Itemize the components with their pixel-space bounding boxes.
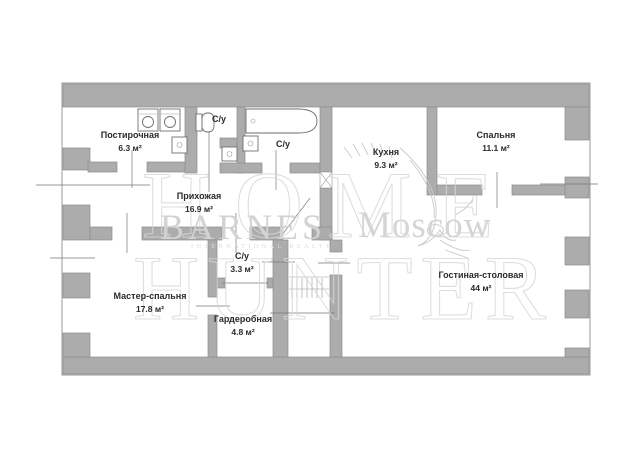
wall-segment	[290, 163, 320, 173]
wall-segment	[220, 163, 262, 173]
hanger-rail-icon	[289, 277, 329, 298]
room-label-su-top-left: С/у	[212, 113, 226, 126]
wall-segment	[330, 240, 342, 252]
wall-segment	[63, 84, 589, 107]
room-area: 44 м²	[438, 282, 523, 294]
wall-segment	[512, 185, 565, 195]
room-name: Гардеробная	[214, 314, 272, 324]
room-label-master-spalnya: Мастер-спальня 17.8 м²	[114, 290, 187, 315]
wall-segment	[63, 333, 90, 357]
wall-segment	[330, 275, 342, 357]
wall-segment	[565, 237, 589, 265]
wall-segment	[273, 240, 288, 357]
room-name: Постирочная	[101, 130, 159, 140]
wall-segment	[565, 107, 589, 140]
room-label-prihozhaya: Прихожая 16.9 м²	[177, 190, 221, 215]
room-name: Кухня	[373, 147, 399, 157]
room-area: 4.8 м²	[214, 326, 272, 338]
room-name: Гостиная-столовая	[438, 270, 523, 280]
room-label-kuhnya: Кухня 9.3 м²	[373, 146, 399, 171]
wall-segment	[142, 227, 222, 240]
wall-segment	[312, 227, 332, 240]
wall-segment	[437, 185, 482, 195]
room-area: 16.9 м²	[177, 203, 221, 215]
wall-segment	[63, 205, 90, 240]
washing-machine-icon	[138, 109, 158, 131]
sink-icon	[172, 137, 187, 153]
wall-segment	[147, 162, 185, 172]
room-area: 3.3 м²	[230, 263, 253, 275]
wall-segment	[565, 348, 589, 357]
room-name: Прихожая	[177, 191, 221, 201]
room-area: 6.3 м²	[101, 142, 159, 154]
wall-segment	[63, 273, 90, 298]
room-label-su-top-right: С/у	[276, 138, 290, 151]
room-area: 11.1 м²	[477, 142, 516, 154]
room-name: С/у	[235, 251, 249, 261]
room-label-garderobnaya: Гардеробная 4.8 м²	[214, 313, 272, 338]
wall-segment	[320, 107, 332, 172]
room-label-su-lower: С/у 3.3 м²	[230, 250, 253, 275]
room-area: 17.8 м²	[114, 303, 187, 315]
door-leaf	[282, 198, 310, 235]
bathtub-icon	[246, 109, 317, 133]
wall-segment	[88, 162, 117, 172]
sink-icon	[243, 136, 258, 151]
room-area: 9.3 м²	[373, 159, 399, 171]
glass-partition	[320, 172, 332, 188]
wall-segment	[250, 227, 283, 240]
wall-segment	[63, 148, 90, 170]
room-label-postirochnaya: Постирочная 6.3 м²	[101, 129, 159, 154]
room-label-gostinaya-stolovaya: Гостиная-столовая 44 м²	[438, 269, 523, 294]
wall-segment	[565, 290, 589, 318]
wall-segment	[208, 240, 217, 297]
room-name: С/у	[276, 139, 290, 149]
floor-plan-drawing	[0, 0, 644, 455]
room-label-spalnya: Спальня 11.1 м²	[477, 129, 516, 154]
sink-icon	[222, 147, 237, 161]
wall-segment	[220, 138, 237, 148]
room-name: Спальня	[477, 130, 516, 140]
room-name: С/у	[212, 114, 226, 124]
wall-segment	[565, 177, 589, 198]
floor-plan: HOME HUNTER BARNES INTERNATIONAL REALTY …	[0, 0, 644, 455]
bird-sketch-watermark	[344, 143, 473, 258]
wall-segment	[90, 227, 112, 240]
wall-segment	[63, 357, 589, 374]
room-name: Мастер-спальня	[114, 291, 187, 301]
washing-machine-icon	[160, 109, 180, 131]
